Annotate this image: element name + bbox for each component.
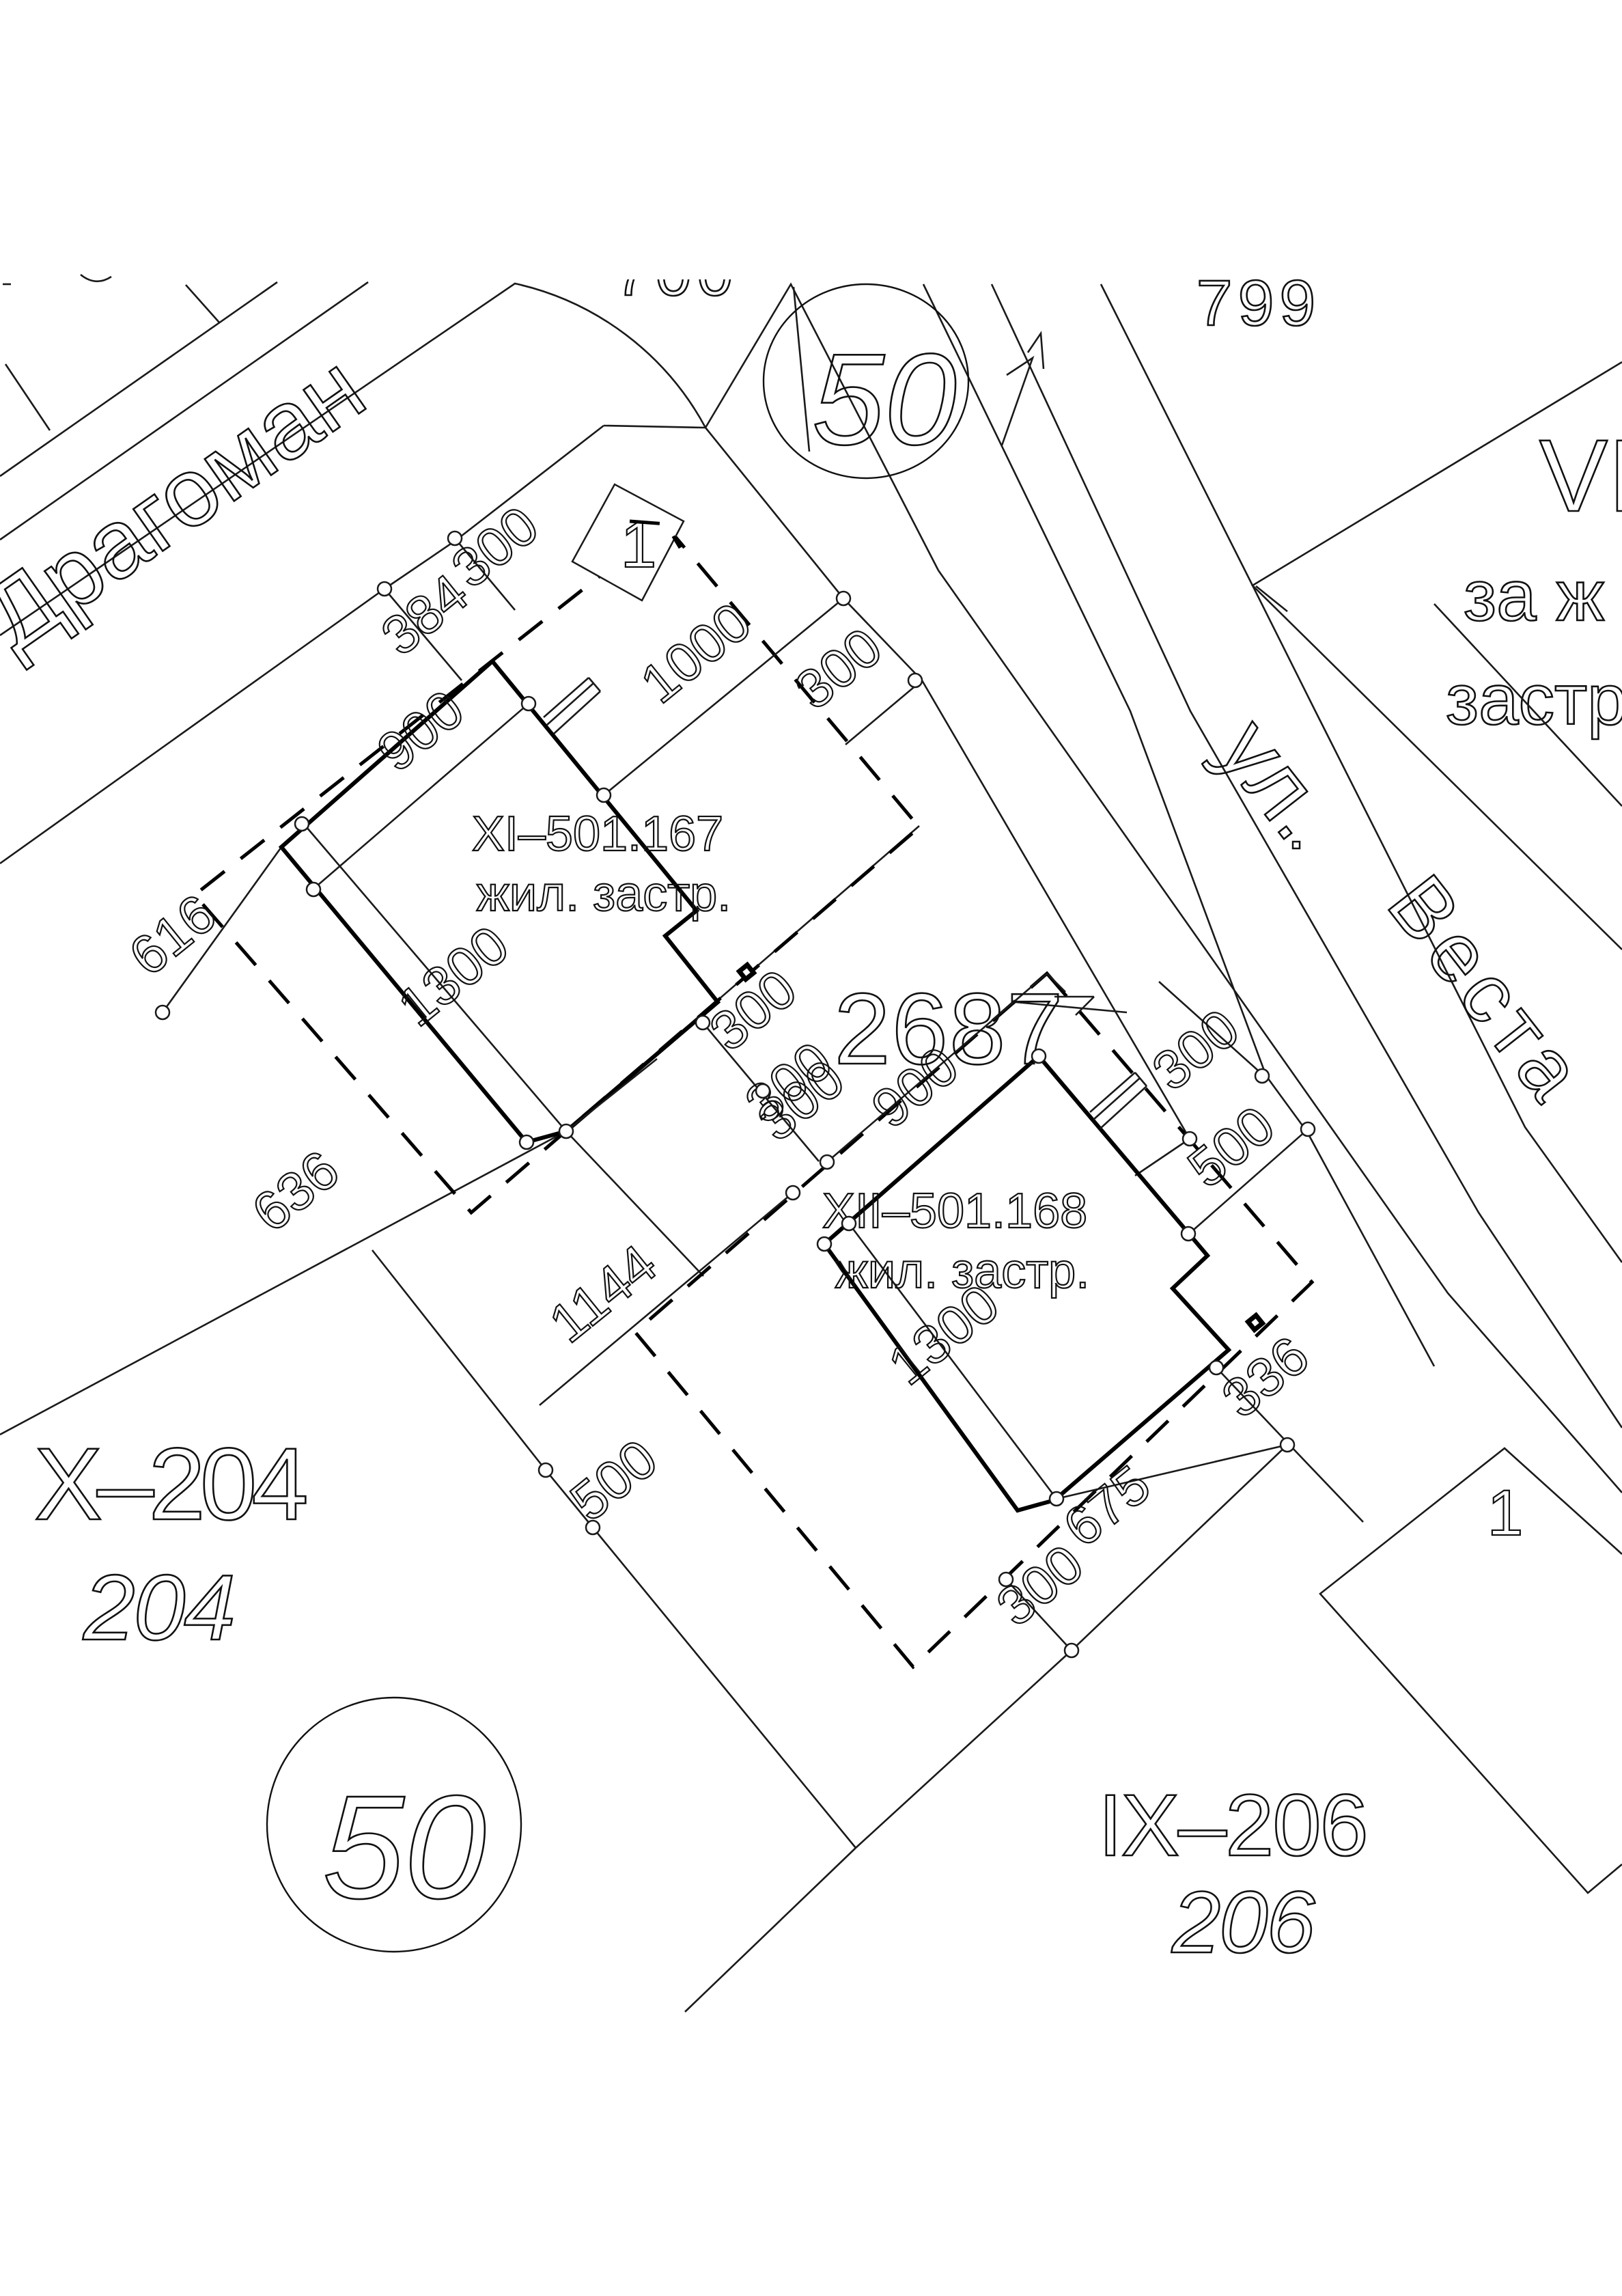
- svg-text:50: 50: [812, 327, 956, 472]
- svg-text:2687: 2687: [834, 973, 1064, 1085]
- svg-text:206: 206: [1171, 1874, 1315, 1972]
- svg-text:XII–501.168: XII–501.168: [822, 1184, 1087, 1239]
- svg-text:застр: застр: [1446, 660, 1622, 740]
- svg-text:1: 1: [1487, 1477, 1524, 1549]
- svg-text:жил. застр.: жил. застр.: [477, 867, 731, 922]
- svg-text:жил. застр.: жил. застр.: [835, 1244, 1089, 1299]
- svg-text:1: 1: [621, 509, 657, 581]
- svg-text:IX–206: IX–206: [1098, 1777, 1367, 1875]
- svg-text:799: 799: [1197, 267, 1322, 340]
- svg-text:за ж: за ж: [1464, 556, 1604, 636]
- svg-text:50: 50: [322, 1765, 486, 1929]
- svg-text:204: 204: [83, 1555, 234, 1659]
- svg-text:XI–501.167: XI–501.167: [472, 807, 723, 861]
- svg-text:X–204: X–204: [34, 1426, 306, 1541]
- svg-text:VII–5: VII–5: [1539, 418, 1622, 533]
